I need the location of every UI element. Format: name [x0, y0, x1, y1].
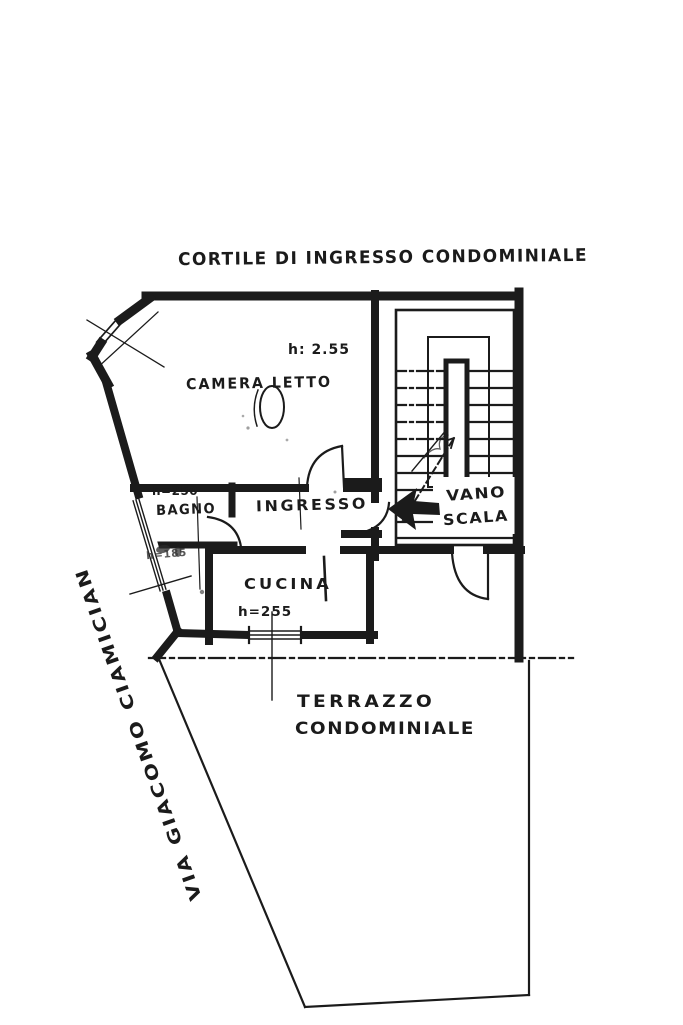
hall-label: INGRESSO: [256, 494, 368, 515]
bedroom-furniture: [254, 386, 284, 428]
bedroom-door-leaf: [342, 446, 344, 487]
niche-height-label: h=185: [146, 547, 188, 563]
floor-plan-sheet: CORTILE DI INGRESSO CONDOMINIALE h: 2.55…: [0, 0, 683, 1025]
courtyard-label: CORTILE DI INGRESSO CONDOMINIALE: [178, 246, 588, 270]
bathroom-label: BAGNO: [156, 501, 217, 519]
terrace-label-line1: TERRAZZO: [297, 692, 435, 712]
stair-newel: [446, 361, 467, 483]
street-label: VIA GIACOMO CIAMICIAN: [72, 564, 207, 903]
terrace-label-line2: CONDOMINIALE: [295, 719, 475, 739]
kitchen-height-label: h=255: [238, 604, 292, 620]
bedroom-height-label: h: 2.55: [288, 342, 350, 358]
bedroom-door-arc: [307, 446, 342, 487]
floor-plan-svg: CORTILE DI INGRESSO CONDOMINIALE h: 2.55…: [0, 0, 683, 1025]
bathroom-height-label: h=250: [152, 484, 198, 498]
windows: [87, 312, 301, 643]
kitchen-label: CUCINA: [244, 575, 332, 593]
labels: CORTILE DI INGRESSO CONDOMINIALE h: 2.55…: [72, 246, 589, 903]
kitchen-window: [249, 627, 301, 643]
stair-treads-left-dashed: [397, 371, 446, 439]
exit-door-arc: [452, 553, 488, 599]
bedroom-label: CAMERA LETTO: [186, 373, 332, 394]
